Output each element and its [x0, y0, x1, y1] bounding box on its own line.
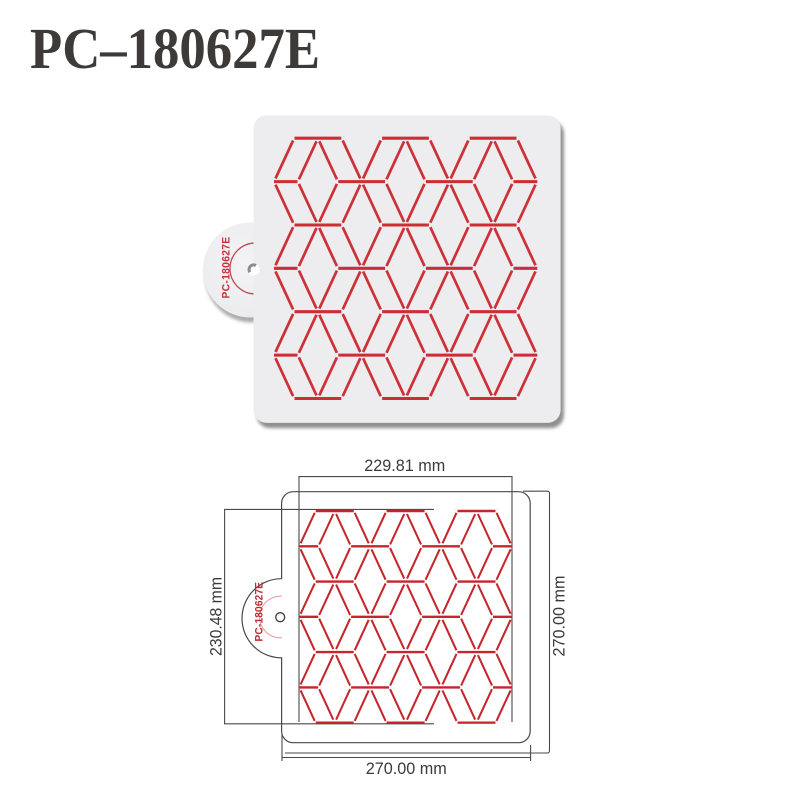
svg-text:270.00 mm: 270.00 mm: [551, 576, 569, 657]
svg-text:230.48 mm: 230.48 mm: [208, 577, 226, 656]
svg-text:PC–180627E: PC–180627E: [30, 16, 320, 81]
svg-text:270.00 mm: 270.00 mm: [366, 760, 447, 778]
svg-text:PC-180627E: PC-180627E: [220, 237, 232, 299]
svg-text:229.81 mm: 229.81 mm: [364, 457, 445, 475]
svg-text:PC-180627E: PC-180627E: [253, 582, 265, 642]
